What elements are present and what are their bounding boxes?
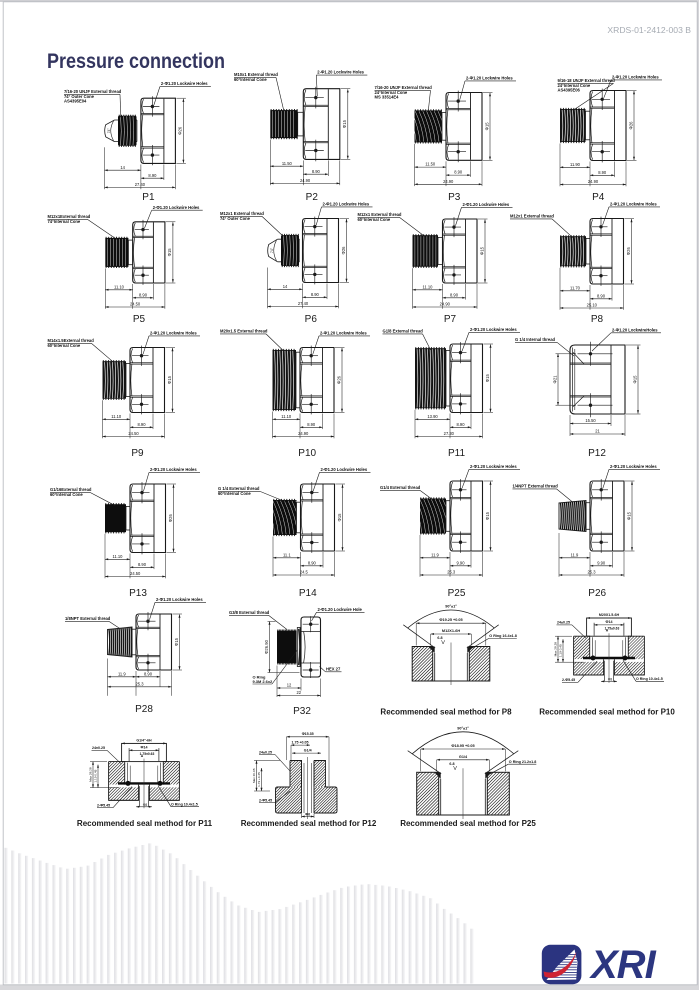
svg-text:11.10: 11.10	[281, 414, 292, 419]
svg-text:2-Φ1.20 Lockwire Holes: 2-Φ1.20 Lockwire Holes	[320, 331, 367, 336]
svg-text:Φ15: Φ15	[626, 511, 631, 520]
svg-text:74°: 74°	[107, 128, 111, 134]
svg-text:Φ15: Φ15	[485, 374, 490, 383]
svg-text:Φ26: Φ26	[626, 247, 631, 256]
svg-text:P9: P9	[131, 448, 144, 459]
svg-text:G1/8 External thread: G1/8 External thread	[383, 329, 424, 334]
svg-text:11.10: 11.10	[113, 554, 124, 559]
svg-text:6.8: 6.8	[449, 762, 454, 766]
svg-text:2-Φ5.45: 2-Φ5.45	[97, 804, 110, 808]
svg-text:11.50: 11.50	[425, 162, 436, 167]
svg-text:21: 21	[595, 429, 600, 434]
svg-text:24.90: 24.90	[300, 178, 311, 183]
svg-text:2-Φ1.20 Lockwire Holes: 2-Φ1.20 Lockwire Holes	[321, 467, 368, 472]
svg-text:90°±1°: 90°±1°	[457, 726, 469, 730]
svg-text:Max 28.28: Max 28.28	[89, 767, 93, 782]
svg-text:12: 12	[287, 683, 292, 688]
svg-text:Φ14: Φ14	[141, 746, 148, 750]
svg-text:27.40: 27.40	[135, 182, 146, 187]
svg-text:P1: P1	[142, 192, 155, 203]
svg-text:P5: P5	[133, 314, 146, 325]
svg-text:Φ14: Φ14	[606, 620, 613, 624]
svg-text:2-Φ1.20 Lockwire Holes: 2-Φ1.20 Lockwire Holes	[153, 205, 200, 210]
svg-text:2-Φ1.20 Lockwire Holes: 2-Φ1.20 Lockwire Holes	[317, 70, 364, 75]
svg-text:24.90: 24.90	[440, 302, 451, 307]
svg-text:1.75 +0.05: 1.75 +0.05	[291, 740, 308, 744]
svg-text:G1/4: G1/4	[304, 748, 312, 752]
svg-text:Φ15: Φ15	[167, 248, 172, 257]
svg-text:8.90: 8.90	[312, 169, 321, 174]
svg-text:Φ15: Φ15	[337, 513, 342, 522]
svg-text:1.75±0.63: 1.75±0.63	[605, 627, 620, 631]
svg-text:1/4NPT External thread: 1/4NPT External thread	[513, 484, 559, 489]
svg-text:2-Φ1.20 Lockwire Holes: 2-Φ1.20 Lockwire Holes	[463, 202, 510, 207]
svg-text:24.90: 24.90	[298, 431, 309, 436]
svg-text:8.90: 8.90	[144, 671, 153, 676]
svg-text:O Ring 10.4x1.5: O Ring 10.4x1.5	[636, 677, 663, 681]
svg-text:Φ26.90: Φ26.90	[264, 639, 269, 653]
svg-text:2-Φ1.20 Lockwire Holes: 2-Φ1.20 Lockwire Holes	[150, 467, 197, 472]
svg-text:27.40: 27.40	[298, 301, 309, 306]
svg-text:2-Φ1.20 Lockwire Holes: 2-Φ1.20 Lockwire Holes	[161, 81, 208, 86]
svg-text:25.3: 25.3	[136, 681, 145, 686]
svg-text:Max 20.08: Max 20.08	[252, 768, 256, 783]
svg-text:24±0.25: 24±0.25	[259, 750, 272, 754]
svg-text:G 1/4 Internal thread: G 1/4 Internal thread	[515, 337, 556, 342]
svg-text:2-Φ1.20 Lockwire Holes: 2-Φ1.20 Lockwire Holes	[323, 202, 370, 207]
svg-text:11.1: 11.1	[283, 552, 291, 557]
svg-text:1.19 0.45: 1.19 0.45	[559, 644, 563, 657]
svg-text:Recommended seal method for P1: Recommended seal method for P10	[539, 708, 675, 717]
svg-text:M20x1.5 External thread: M20x1.5 External thread	[220, 329, 268, 334]
svg-text:14: 14	[283, 284, 288, 289]
svg-text:8.90: 8.90	[457, 422, 466, 427]
svg-text:2-Φ1.20 Lockwire Holes: 2-Φ1.20 Lockwire Holes	[156, 597, 203, 602]
svg-text:1.19 0.45: 1.19 0.45	[94, 769, 98, 782]
svg-text:2-Φ5.45: 2-Φ5.45	[259, 798, 272, 802]
svg-text:Φ15.35: Φ15.35	[302, 732, 314, 736]
svg-text:M12X1-6H: M12X1-6H	[442, 629, 460, 633]
svg-text:8.90: 8.90	[139, 292, 148, 297]
svg-text:2-Φ1.20 LockwireHoles: 2-Φ1.20 LockwireHoles	[612, 328, 658, 333]
svg-text:24.50: 24.50	[130, 302, 141, 307]
svg-text:M20X1.5-6H: M20X1.5-6H	[599, 613, 620, 617]
svg-text:P13: P13	[129, 588, 147, 599]
svg-text:8.90: 8.90	[138, 422, 147, 427]
svg-text:25.3: 25.3	[447, 570, 456, 575]
svg-text:O Ring 10.4x1.5: O Ring 10.4x1.5	[171, 803, 198, 807]
svg-text:Φ26: Φ26	[628, 121, 633, 130]
svg-text:Φ15: Φ15	[167, 375, 172, 384]
svg-text:P12: P12	[588, 448, 606, 459]
svg-text:74°: 74°	[270, 247, 274, 253]
svg-text:6.8: 6.8	[437, 636, 442, 640]
svg-text:2-Φ1.20 Lockwire Holes: 2-Φ1.20 Lockwire Holes	[470, 464, 517, 469]
svg-text:P14: P14	[299, 588, 317, 599]
svg-text:P6: P6	[305, 314, 318, 325]
svg-text:Recommended seal method for P8: Recommended seal method for P8	[380, 708, 512, 717]
svg-text:Φ15: Φ15	[484, 122, 489, 131]
svg-text:Recommended seal method for P2: Recommended seal method for P25	[400, 819, 536, 828]
svg-text:P26: P26	[588, 588, 606, 599]
svg-text:8.90: 8.90	[597, 293, 606, 298]
svg-text:11.10: 11.10	[111, 414, 122, 419]
svg-text:1/8NPT External thread: 1/8NPT External thread	[65, 616, 111, 621]
svg-text:P10: P10	[298, 448, 316, 459]
svg-text:Φ15: Φ15	[632, 375, 637, 384]
svg-text:11.9: 11.9	[431, 552, 439, 557]
svg-text:24±0.25: 24±0.25	[92, 746, 105, 750]
svg-text:G1/4 External thread: G1/4 External thread	[380, 485, 421, 490]
svg-text:8.90: 8.90	[450, 292, 459, 297]
svg-text:8.90: 8.90	[311, 292, 320, 297]
svg-text:27.30: 27.30	[444, 431, 455, 436]
svg-text:13.90: 13.90	[427, 414, 438, 419]
svg-text:Φ21: Φ21	[552, 375, 557, 384]
svg-text:8.90: 8.90	[138, 562, 147, 567]
svg-text:24±0.25: 24±0.25	[557, 621, 570, 625]
svg-text:Φ19.25 +0.05: Φ19.25 +0.05	[439, 618, 462, 622]
svg-text:24.5: 24.5	[300, 570, 309, 575]
svg-text:P4: P4	[592, 192, 605, 203]
svg-text:11.9: 11.9	[571, 552, 579, 557]
svg-text:24.50: 24.50	[130, 571, 141, 576]
svg-text:9.90: 9.90	[457, 560, 466, 565]
svg-text:2-Φ1.20 Lockwire Holes: 2-Φ1.20 Lockwire Holes	[610, 202, 657, 207]
svg-text:P25: P25	[448, 588, 466, 599]
svg-text:Φ15: Φ15	[479, 246, 484, 255]
svg-text:O Ring 21.2x1.8: O Ring 21.2x1.8	[509, 760, 536, 764]
svg-text:Φ6: Φ6	[305, 813, 310, 817]
svg-text:1.79 +0.45: 1.79 +0.45	[257, 772, 261, 787]
svg-text:Φ26: Φ26	[336, 375, 341, 384]
svg-text:8.90: 8.90	[454, 170, 463, 175]
svg-text:24.90: 24.90	[443, 179, 454, 184]
svg-text:Recommended seal method for P1: Recommended seal method for P12	[241, 819, 377, 828]
svg-text:P7: P7	[444, 314, 457, 325]
svg-text:P28: P28	[135, 704, 153, 715]
svg-text:Φ26: Φ26	[168, 514, 173, 523]
svg-text:P3: P3	[448, 192, 461, 203]
svg-text:Φ15: Φ15	[485, 511, 490, 520]
svg-text:11.70: 11.70	[570, 285, 581, 290]
svg-text:8.90: 8.90	[308, 560, 317, 565]
svg-text:XRDS-01-2412-003 B: XRDS-01-2412-003 B	[607, 25, 691, 35]
svg-text:2-Φ1.20 Lockwire Holes: 2-Φ1.20 Lockwire Holes	[470, 327, 517, 332]
svg-text:Φ8: Φ8	[143, 803, 148, 807]
svg-text:Φ26: Φ26	[178, 126, 183, 135]
svg-text:G1/4"-6H: G1/4"-6H	[136, 738, 152, 742]
svg-text:Φ8: Φ8	[608, 677, 613, 681]
svg-text:11.10: 11.10	[114, 284, 125, 289]
svg-text:Recommended seal method for P1: Recommended seal method for P11	[77, 819, 213, 828]
svg-text:8.90: 8.90	[598, 170, 607, 175]
svg-text:P32: P32	[293, 706, 311, 717]
svg-text:11.90: 11.90	[570, 162, 581, 167]
svg-text:25.10: 25.10	[587, 303, 598, 308]
svg-text:2-Φ1.20 Lockwire Holes: 2-Φ1.20 Lockwire Holes	[466, 76, 513, 81]
svg-text:MS 33514E4: MS 33514E4	[375, 95, 400, 100]
svg-text:G1/4: G1/4	[459, 755, 468, 759]
svg-text:G3/8 External thread: G3/8 External thread	[229, 610, 270, 615]
svg-text:2-Φ1.20 Lockwire Holes: 2-Φ1.20 Lockwire Holes	[610, 464, 657, 469]
svg-text:24.90: 24.90	[588, 179, 599, 184]
svg-text:P2: P2	[306, 192, 319, 203]
svg-text:8.90: 8.90	[307, 422, 316, 427]
svg-text:90°±1°: 90°±1°	[445, 605, 457, 609]
svg-text:2-Φ1.20 Lockwire Hole: 2-Φ1.20 Lockwire Hole	[318, 607, 363, 612]
svg-text:1.75±0.63: 1.75±0.63	[140, 752, 155, 756]
svg-text:HEX 27: HEX 27	[326, 667, 341, 672]
svg-text:Φ18.95 +0.05: Φ18.95 +0.05	[451, 744, 474, 748]
svg-text:Φ15: Φ15	[174, 637, 179, 646]
svg-text:P8: P8	[591, 314, 604, 325]
svg-text:2-Φ1.20 Lockwire Holes: 2-Φ1.20 Lockwire Holes	[612, 75, 659, 80]
svg-text:M12x1 External thread: M12x1 External thread	[510, 214, 554, 219]
svg-text:P11: P11	[448, 448, 465, 459]
svg-text:22: 22	[297, 690, 302, 695]
svg-text:9.90: 9.90	[597, 560, 606, 565]
svg-text:Max 28.28: Max 28.28	[554, 642, 558, 657]
svg-text:O Ring 16.4x1.8: O Ring 16.4x1.8	[489, 634, 516, 638]
svg-text:9.3M 2.6x2: 9.3M 2.6x2	[253, 679, 274, 684]
svg-text:Pressure connection: Pressure connection	[47, 50, 225, 73]
svg-text:11.50: 11.50	[282, 161, 293, 166]
svg-text:15.50: 15.50	[585, 418, 596, 423]
svg-text:11.10: 11.10	[423, 284, 434, 289]
svg-text:24.50: 24.50	[128, 431, 139, 436]
svg-text:2-Φ5.45: 2-Φ5.45	[562, 678, 575, 682]
svg-text:AS4395E04: AS4395E04	[64, 99, 87, 104]
svg-text:XRI: XRI	[589, 943, 657, 987]
svg-text:8.90: 8.90	[148, 173, 157, 178]
svg-text:25.3: 25.3	[588, 570, 597, 575]
svg-text:14: 14	[120, 165, 125, 170]
svg-text:AS4395E06: AS4395E06	[558, 88, 581, 93]
svg-text:11.9: 11.9	[118, 671, 126, 676]
svg-text:Φ15: Φ15	[342, 119, 347, 128]
svg-text:2-Φ1.20 Lockwire Holes: 2-Φ1.20 Lockwire Holes	[150, 331, 197, 336]
svg-text:Φ26: Φ26	[341, 246, 346, 255]
